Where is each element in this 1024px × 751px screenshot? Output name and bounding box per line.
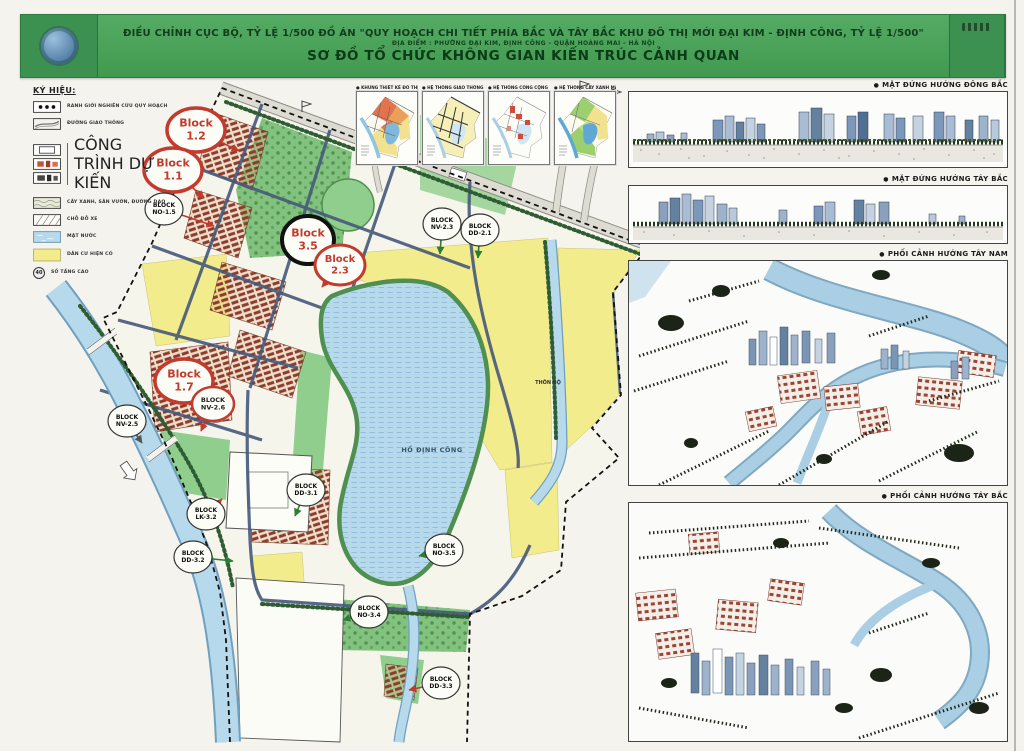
- map-block-label: Block2.3: [315, 245, 365, 287]
- water-swatch-icon: [33, 231, 61, 243]
- inset-map: [488, 91, 550, 165]
- block-label-text: DD-3.3: [429, 683, 452, 690]
- block-label-text: LK-3.2: [195, 514, 216, 521]
- residential-swatch-icon: [33, 248, 61, 262]
- plan-sheet: ĐIỀU CHỈNH CỤC BỘ, TỶ LỆ 1/500 ĐỒ ÁN "QU…: [0, 0, 1024, 751]
- floor-count-badge: 40: [33, 267, 45, 279]
- greenery-swatch-icon: [33, 197, 61, 209]
- perspective-southwest-label: ●PHỐI CẢNH HƯỚNG TÂY NAM: [879, 250, 1008, 258]
- building-red-swatch-icon: [33, 158, 61, 170]
- block-label-text: NO-3.4: [357, 612, 380, 619]
- road-swatch-icon: [33, 118, 61, 130]
- legend-item-parking: CHỖ ĐỖ XE: [33, 214, 171, 226]
- inset-map: [422, 91, 484, 165]
- legend-item-planned-buildings: CÔNG TRÌNH DỰ KIẾN: [33, 135, 171, 192]
- inset-public-map: [489, 92, 549, 164]
- legend-item-floor-count: 40 SỐ TẦNG CAO: [33, 267, 171, 279]
- inset-maps-strip: ● KHUNG THIẾT KẾ ĐÔ THỊ ● HỆ THỐNG GIAO …: [356, 85, 616, 165]
- block-label-text: NV-2.3: [431, 224, 453, 231]
- block-label-text: NO-3.5: [432, 550, 455, 557]
- block-label-text: Block: [325, 254, 356, 265]
- legend-title: KÝ HIỆU:: [33, 86, 171, 95]
- block-label-text: NV-2.5: [116, 421, 138, 428]
- corner-note-box: [949, 15, 1005, 77]
- block-label-text: NV-2.6: [201, 404, 226, 412]
- lake-label: HỒ ĐỊNH CÔNG: [401, 444, 462, 454]
- block-label-text: 3.5: [298, 239, 318, 252]
- building-outline-swatch-icon: [33, 144, 61, 156]
- elevation-northeast-panel: [628, 91, 1008, 168]
- village-label: THÔN BỘ: [535, 379, 561, 386]
- elevation-northwest-panel: [628, 185, 1008, 244]
- official-stamp-icon: [39, 26, 79, 66]
- block-label-text: 2.3: [331, 266, 349, 277]
- map-block-label: BLOCKLK-3.2: [187, 498, 225, 530]
- legend-item-existing-residential: DÂN CƯ HIỆN CÓ: [33, 248, 171, 262]
- inset-urban-design-frame: ● KHUNG THIẾT KẾ ĐÔ THỊ: [356, 85, 418, 165]
- block-label-text: DD-3.2: [181, 557, 204, 564]
- title-block: ĐIỀU CHỈNH CỤC BỘ, TỶ LỆ 1/500 ĐỒ ÁN "QU…: [98, 15, 949, 77]
- bullet-icon: ●: [879, 251, 885, 258]
- bullet-icon: ●: [882, 493, 888, 500]
- inset-greenery-water-system: ● HỆ THỐNG CÂY XANH MẶT NƯỚC: [554, 85, 616, 165]
- legend-panel: KÝ HIỆU: RANH GIỚI NGHIÊN CỨU QUY HOẠCH …: [33, 86, 171, 284]
- title-bar: ĐIỀU CHỈNH CỤC BỘ, TỶ LỆ 1/500 ĐỒ ÁN "QU…: [20, 14, 1006, 78]
- river-flow-arrow-icon: [117, 459, 142, 485]
- building-dark-swatch-icon: [33, 172, 61, 184]
- legend-item-road: ĐƯỜNG GIAO THÔNG: [33, 118, 171, 130]
- perspective-southwest-render: [629, 261, 1007, 485]
- bullet-icon: ●: [874, 82, 880, 89]
- elevation-northeast-label: ●MẶT ĐỨNG HƯỚNG ĐÔNG BẮC: [874, 81, 1008, 89]
- inset-map: [554, 91, 616, 165]
- parking-swatch-icon: [33, 214, 61, 226]
- right-panel-column: ●MẶT ĐỨNG HƯỚNG ĐÔNG BẮC: [628, 80, 1010, 748]
- block-label-text: Block: [179, 117, 213, 130]
- perspective-northwest-panel: [628, 502, 1008, 742]
- perspective-northwest-render: [629, 503, 1007, 741]
- drawing-title: SƠ ĐỒ TỔ CHỨC KHÔNG GIAN KIẾN TRÚC CẢNH …: [307, 48, 740, 64]
- inset-greenery-map: [555, 92, 615, 164]
- inset-urban-design-map: [357, 92, 417, 164]
- perspective-northwest-label: ●PHỐI CẢNH HƯỚNG TÂY BẮC: [882, 492, 1008, 500]
- planned-building-swatches: [33, 144, 61, 184]
- elevation-northwest-drawing: [629, 186, 1007, 243]
- inset-public-facilities: ● HỆ THỐNG CÔNG CỘNG: [488, 85, 550, 165]
- document-title: ĐIỀU CHỈNH CỤC BỘ, TỶ LỆ 1/500 ĐỒ ÁN "QU…: [123, 28, 924, 39]
- legend-item-water: MẶT NƯỚC: [33, 231, 171, 243]
- block-label-text: 1.2: [186, 129, 206, 142]
- inset-map: [356, 91, 418, 165]
- inset-traffic-map: [423, 92, 483, 164]
- elevation-northwest-label: ●MẶT ĐỨNG HƯỚNG TÂY BẮC: [883, 175, 1008, 183]
- legend-item-greenery: CÂY XANH, SÂN VƯỜN, ĐƯỜNG DẠO: [33, 197, 171, 209]
- inset-traffic-system: ● HỆ THỐNG GIAO THÔNG: [422, 85, 484, 165]
- elevation-northeast-drawing: [629, 92, 1007, 167]
- corner-emblem-box: [21, 15, 98, 77]
- legend-bracket: [67, 143, 68, 185]
- block-label-text: 1.7: [174, 380, 194, 393]
- boundary-swatch-icon: [33, 101, 61, 113]
- block-label-text: DD-3.1: [294, 490, 317, 497]
- legend-item-boundary: RANH GIỚI NGHIÊN CỨU QUY HOẠCH: [33, 101, 171, 113]
- block-label-text: Block: [291, 227, 325, 240]
- block-label-text: Block: [167, 368, 201, 381]
- perspective-southwest-panel: [628, 260, 1008, 486]
- block-label-text: DD-2.1: [468, 230, 491, 237]
- handwritten-mark: [962, 23, 992, 31]
- bullet-icon: ●: [883, 176, 889, 183]
- document-location: ĐỊA ĐIỂM : PHƯỜNG ĐẠI KIM, ĐỊNH CÔNG - Q…: [392, 40, 655, 47]
